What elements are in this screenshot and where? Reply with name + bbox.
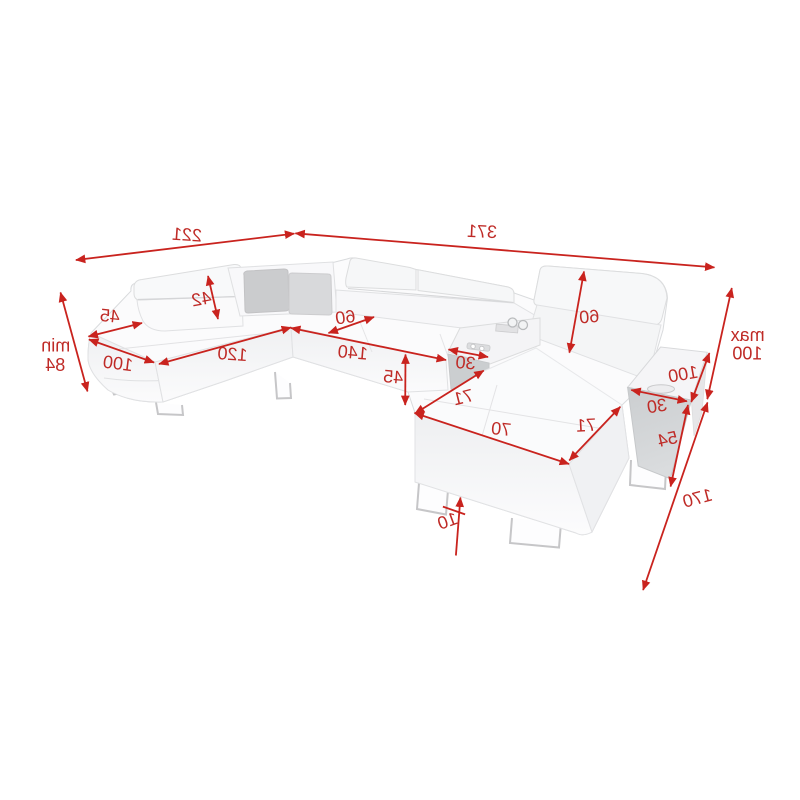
svg-text:371: 371 (467, 221, 498, 242)
svg-text:84: 84 (45, 355, 65, 375)
svg-text:170: 170 (680, 485, 714, 512)
svg-text:100: 100 (102, 352, 134, 376)
svg-text:120: 120 (217, 343, 248, 365)
svg-text:140: 140 (337, 341, 369, 364)
svg-text:45: 45 (382, 366, 404, 388)
svg-text:100: 100 (732, 344, 762, 364)
svg-text:221: 221 (171, 224, 202, 246)
svg-text:42: 42 (190, 287, 213, 310)
svg-text:60: 60 (578, 306, 600, 328)
svg-text:70: 70 (490, 418, 512, 440)
svg-text:54: 54 (656, 427, 680, 451)
svg-text:min: min (41, 336, 70, 356)
svg-text:max: max (731, 325, 765, 345)
svg-text:30: 30 (455, 352, 477, 373)
svg-text:45: 45 (99, 305, 121, 327)
svg-text:30: 30 (646, 394, 669, 417)
svg-text:60: 60 (334, 306, 357, 329)
svg-text:71: 71 (575, 415, 596, 436)
